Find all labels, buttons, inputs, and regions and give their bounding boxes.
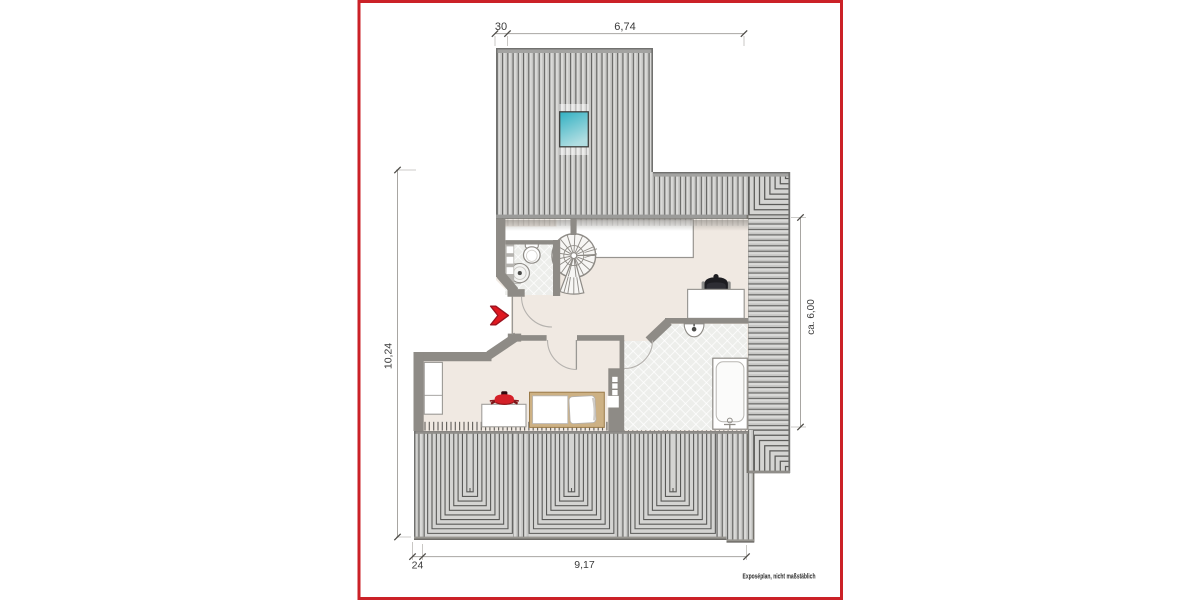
svg-text:10,24: 10,24: [383, 343, 395, 369]
svg-text:30: 30: [495, 21, 507, 33]
svg-text:6,74: 6,74: [614, 21, 635, 33]
svg-text:ca. 6,00: ca. 6,00: [806, 299, 817, 335]
svg-text:24: 24: [412, 559, 424, 571]
svg-text:Exposéplan, nicht maßstäblich: Exposéplan, nicht maßstäblich: [743, 573, 816, 580]
svg-text:9,17: 9,17: [574, 559, 595, 571]
